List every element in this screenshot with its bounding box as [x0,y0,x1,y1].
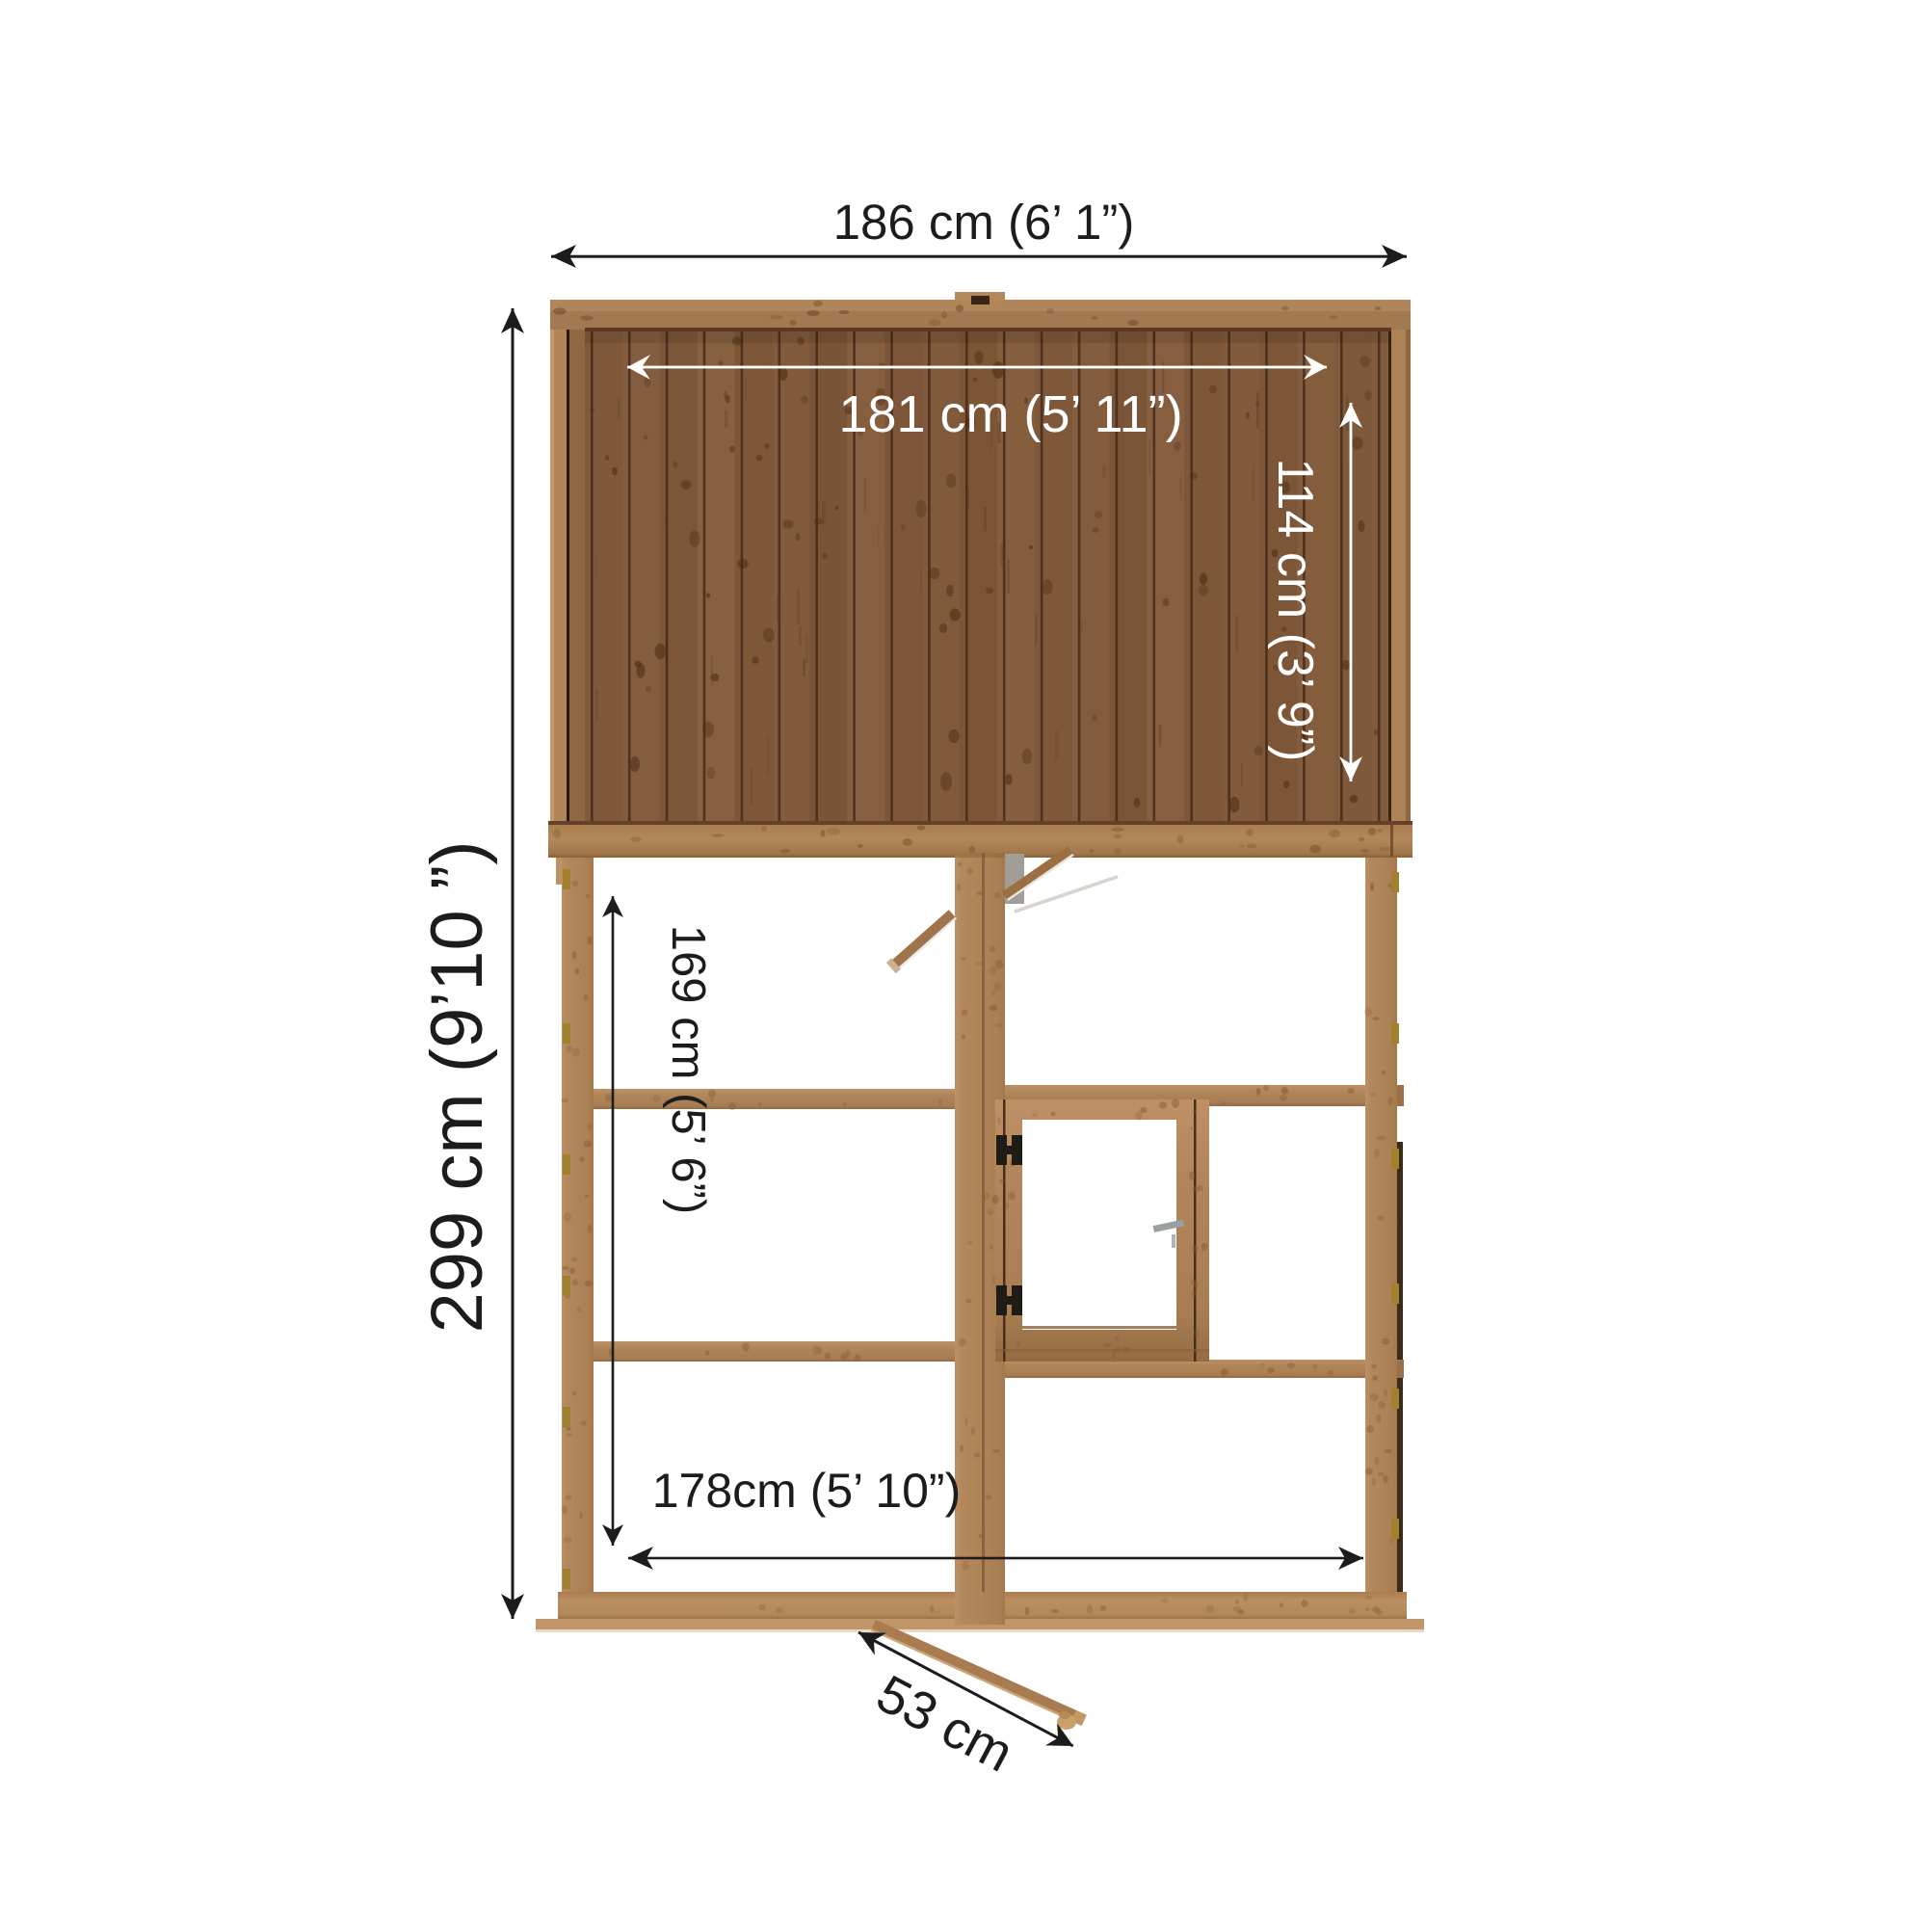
svg-text:178cm (5’ 10”): 178cm (5’ 10”) [652,1464,961,1518]
svg-text:299 cm (9’10 ”): 299 cm (9’10 ”) [416,840,498,1333]
svg-text:186 cm (6’ 1”): 186 cm (6’ 1”) [833,195,1135,250]
svg-text:114 cm (3’ 9”): 114 cm (3’ 9”) [1267,459,1323,762]
svg-text:169 cm (5’ 6”): 169 cm (5’ 6”) [662,925,714,1214]
svg-text:181 cm (5’ 11”): 181 cm (5’ 11”) [838,385,1182,443]
